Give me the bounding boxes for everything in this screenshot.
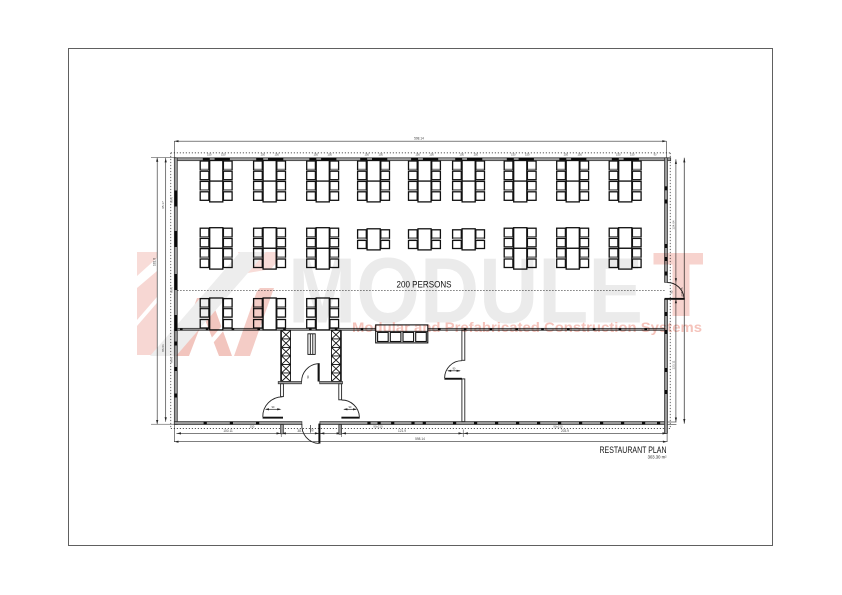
- svg-text:150: 150: [250, 424, 255, 428]
- svg-text:150: 150: [564, 152, 569, 156]
- svg-text:150: 150: [364, 152, 369, 156]
- svg-text:90x210: 90x210: [373, 424, 383, 428]
- svg-text:150: 150: [511, 152, 516, 156]
- svg-text:150: 150: [525, 152, 530, 156]
- svg-text:150: 150: [630, 152, 635, 156]
- svg-text:Modular and Prefabricated Cons: Modular and Prefabricated Construction S…: [352, 319, 702, 335]
- svg-text:303.30 m²: 303.30 m²: [648, 455, 667, 460]
- svg-text:150: 150: [221, 152, 226, 156]
- svg-text:150: 150: [274, 152, 279, 156]
- svg-text:123.11: 123.11: [671, 360, 675, 369]
- svg-text:M090: M090: [170, 356, 173, 363]
- svg-text:150: 150: [473, 152, 478, 156]
- svg-text:M090: M090: [170, 286, 173, 293]
- svg-text:124.64: 124.64: [671, 220, 675, 230]
- svg-text:150: 150: [578, 152, 583, 156]
- svg-text:598.14: 598.14: [415, 437, 425, 441]
- svg-text:150: 150: [415, 152, 420, 156]
- svg-text:150: 150: [378, 152, 383, 156]
- svg-text:100.11: 100.11: [223, 429, 233, 433]
- svg-text:150: 150: [328, 152, 333, 156]
- svg-text:M090: M090: [170, 196, 173, 203]
- svg-text:150: 150: [616, 152, 621, 156]
- svg-text:RESTAURANT PLAN: RESTAURANT PLAN: [600, 445, 667, 455]
- svg-text:150: 150: [207, 152, 212, 156]
- svg-text:90x210: 90x210: [553, 424, 563, 428]
- svg-text:95.17: 95.17: [161, 201, 165, 209]
- svg-text:203.9: 203.9: [561, 429, 569, 433]
- svg-text:150: 150: [459, 152, 464, 156]
- svg-text:121.9: 121.9: [398, 429, 406, 433]
- svg-text:150: 150: [429, 152, 434, 156]
- svg-text:150: 150: [260, 152, 265, 156]
- svg-text:598.14: 598.14: [414, 137, 424, 141]
- svg-text:150: 150: [314, 152, 319, 156]
